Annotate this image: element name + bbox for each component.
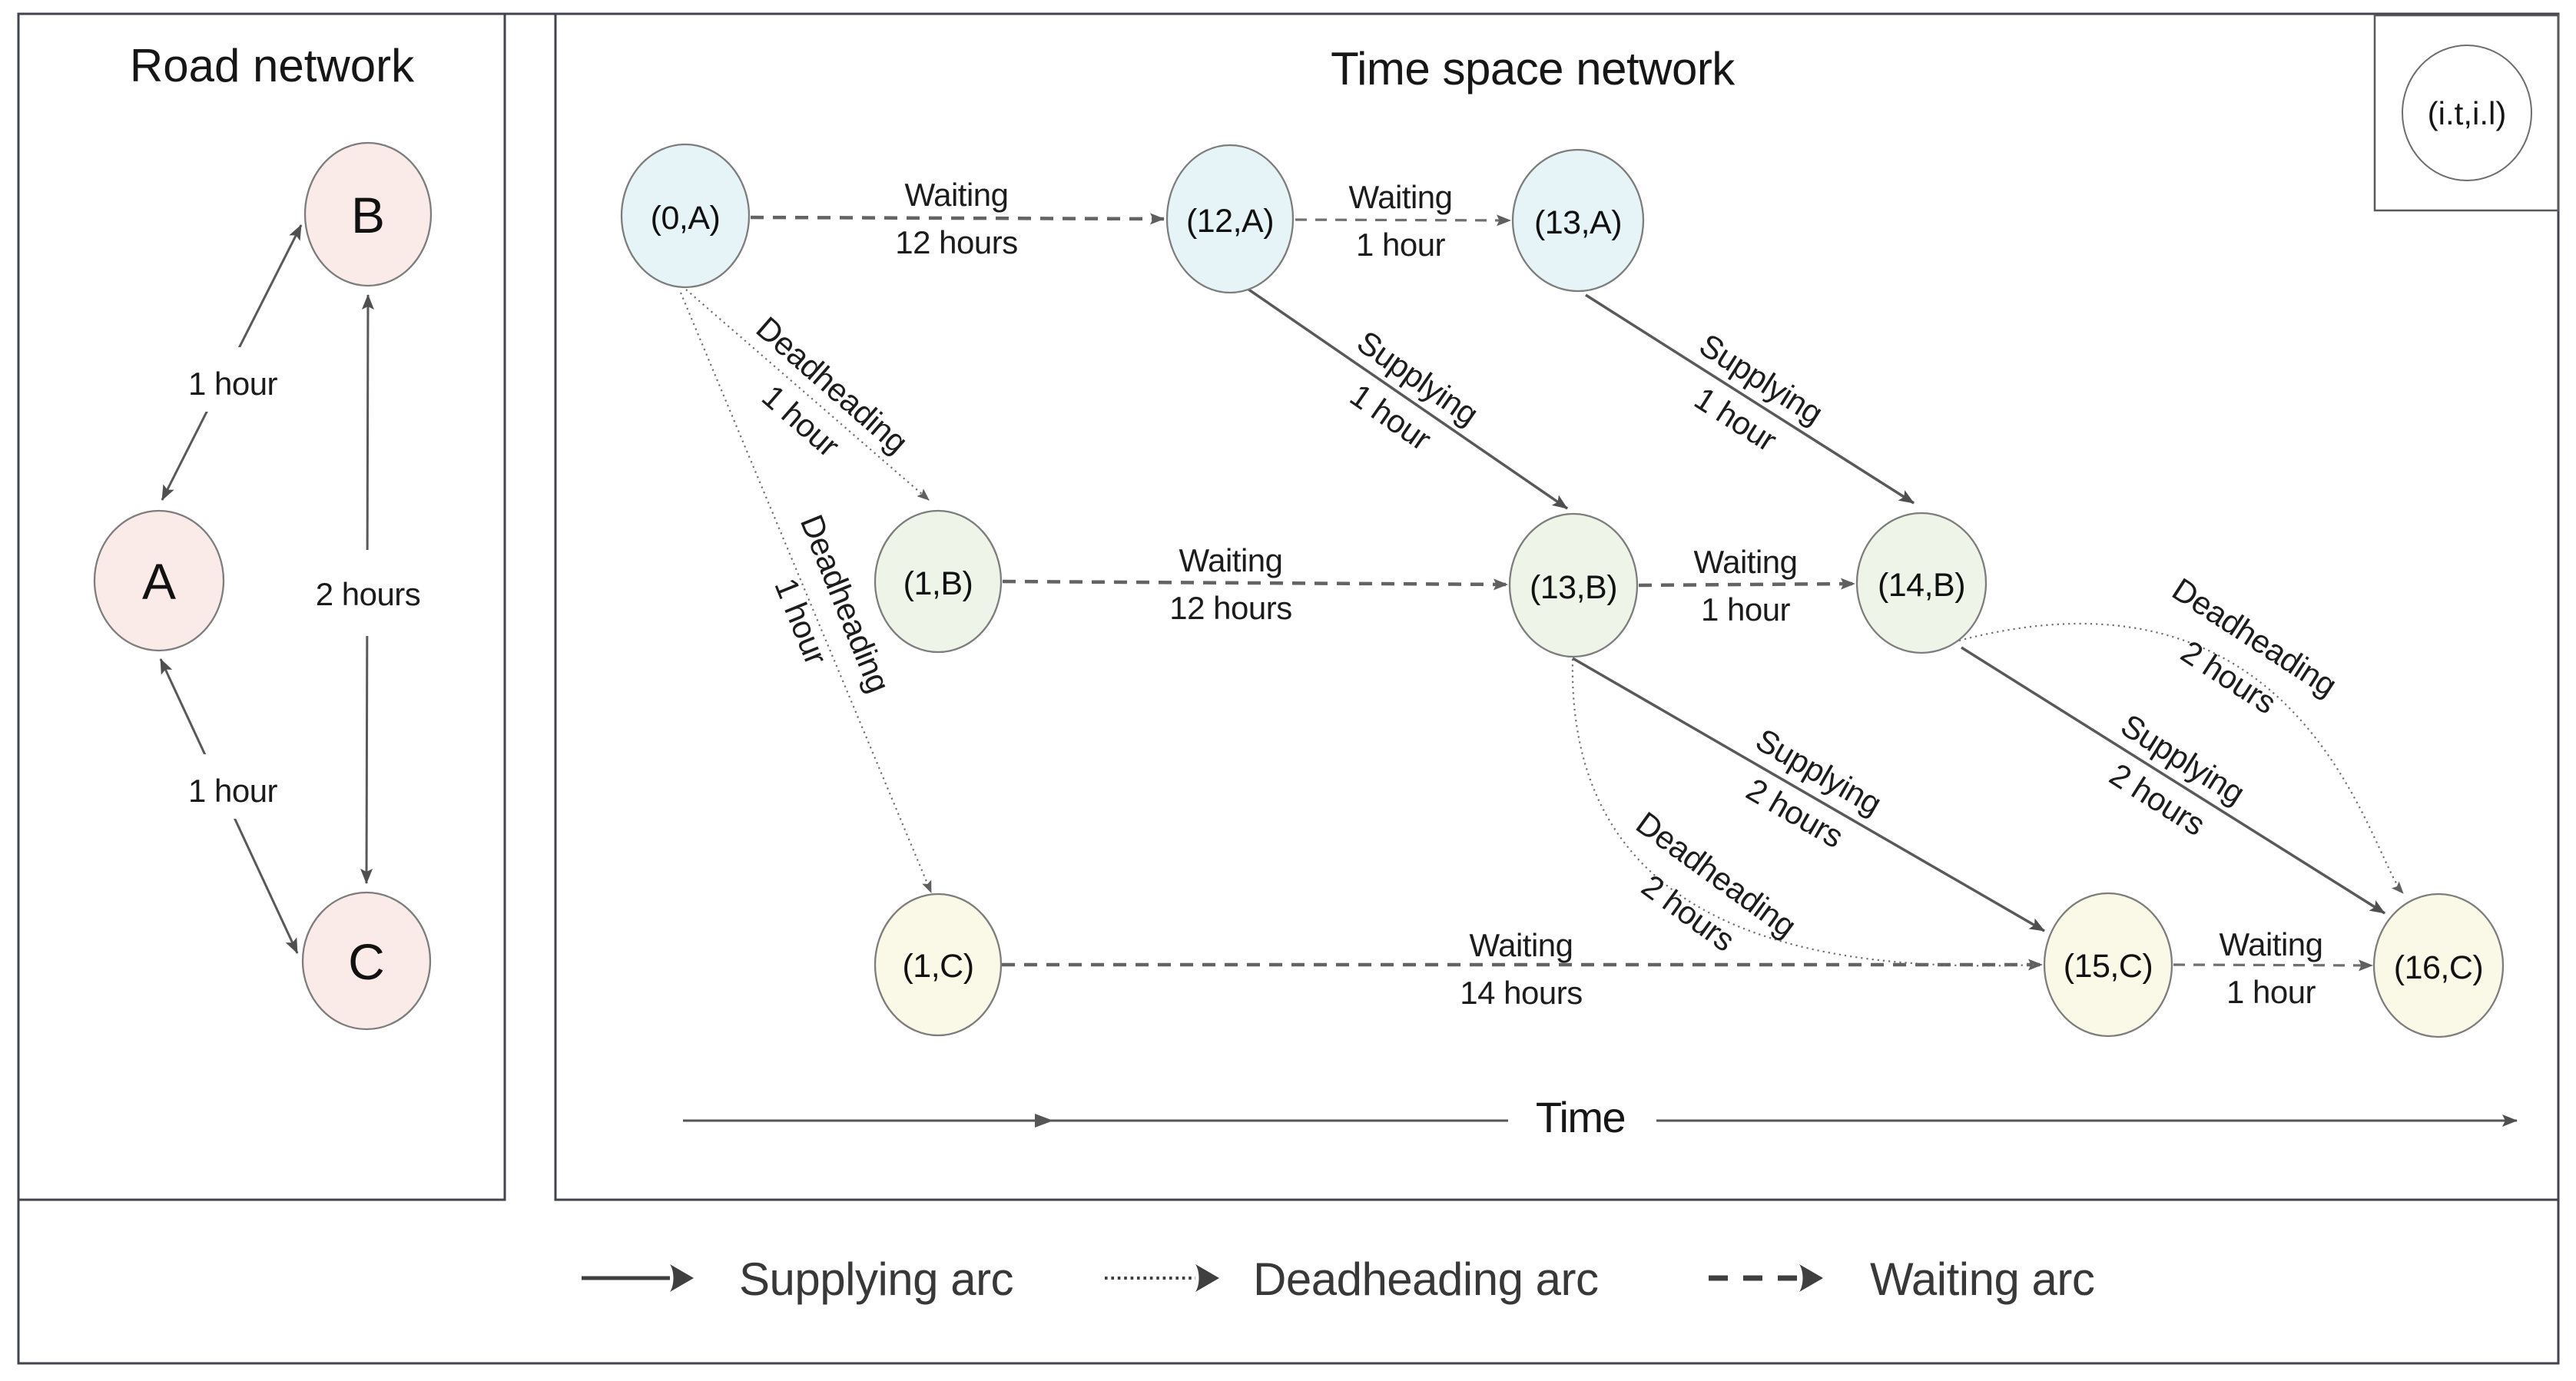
svg-text:(i.t,i.l): (i.t,i.l) xyxy=(2428,95,2507,131)
svg-text:1 hour: 1 hour xyxy=(188,773,278,809)
svg-text:12 hours: 12 hours xyxy=(895,224,1017,260)
svg-text:Waiting: Waiting xyxy=(905,177,1009,213)
svg-text:(1,B): (1,B) xyxy=(903,565,973,602)
svg-text:12 hours: 12 hours xyxy=(1169,590,1291,626)
svg-text:1 hour: 1 hour xyxy=(1356,227,1446,263)
svg-text:1 hour: 1 hour xyxy=(188,366,278,402)
svg-text:2 hours: 2 hours xyxy=(316,576,421,612)
svg-text:Waiting: Waiting xyxy=(2220,926,2323,962)
svg-text:B: B xyxy=(351,187,385,243)
svg-text:1 hour: 1 hour xyxy=(2226,974,2316,1010)
svg-text:Deadheading arc: Deadheading arc xyxy=(1253,1253,1599,1305)
svg-text:Waiting: Waiting xyxy=(1179,542,1283,578)
svg-text:Time space network: Time space network xyxy=(1331,43,1736,94)
svg-text:(1,C): (1,C) xyxy=(902,948,973,985)
svg-text:(13,B): (13,B) xyxy=(1530,569,1617,606)
svg-text:1 hour: 1 hour xyxy=(1701,591,1791,628)
svg-text:(0,A): (0,A) xyxy=(651,200,721,237)
svg-text:C: C xyxy=(348,933,385,990)
svg-text:Road network: Road network xyxy=(130,40,415,91)
svg-text:Supplying arc: Supplying arc xyxy=(739,1253,1013,1305)
svg-text:Waiting: Waiting xyxy=(1694,544,1798,580)
svg-text:(14,B): (14,B) xyxy=(1878,567,1965,604)
svg-text:(13,A): (13,A) xyxy=(1534,204,1622,241)
svg-text:(15,C): (15,C) xyxy=(2064,948,2153,985)
svg-text:14 hours: 14 hours xyxy=(1460,975,1582,1011)
svg-text:(12,A): (12,A) xyxy=(1186,203,1274,240)
svg-text:A: A xyxy=(142,553,176,610)
svg-text:Waiting arc: Waiting arc xyxy=(1870,1253,2094,1305)
svg-text:Waiting: Waiting xyxy=(1470,927,1573,963)
svg-text:Time: Time xyxy=(1536,1093,1625,1141)
svg-text:Waiting: Waiting xyxy=(1349,179,1453,215)
svg-text:(16,C): (16,C) xyxy=(2394,949,2483,986)
